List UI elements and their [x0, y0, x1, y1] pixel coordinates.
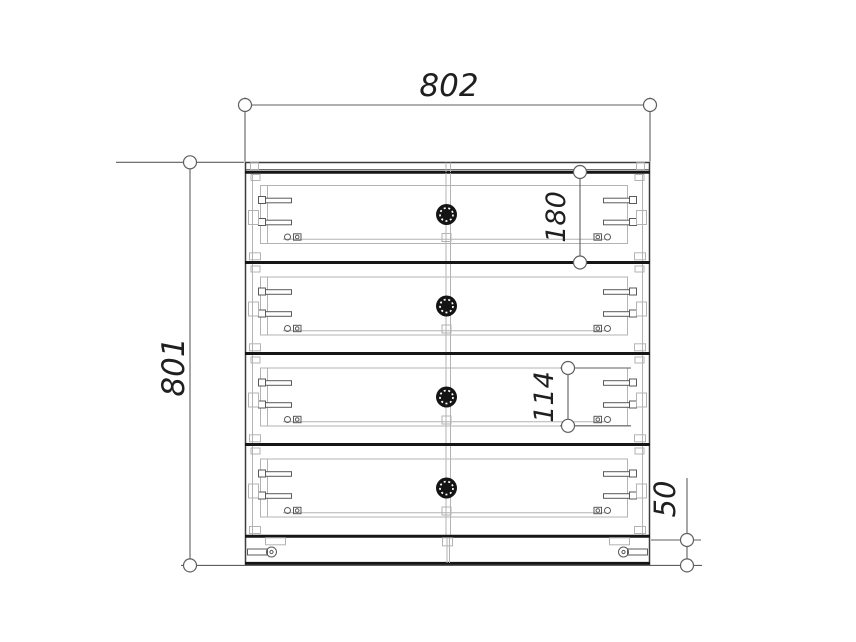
plinth-fitting-icon	[610, 538, 630, 545]
drawer-row-2	[249, 266, 647, 335]
cam-lock-icon	[635, 344, 646, 351]
dimension-label-front-height: 180	[541, 191, 572, 243]
drawer-row-1	[249, 175, 647, 244]
dimension-terminator-icon	[562, 362, 575, 375]
dimension-label-width: 802	[419, 68, 478, 104]
cam-lock-icon	[250, 435, 261, 442]
dimension-overall-width: 802	[239, 68, 657, 162]
plinth	[248, 538, 648, 563]
cam-lock-icon	[251, 163, 259, 170]
cam-lock-icon	[637, 163, 645, 170]
plinth-dowel-right	[628, 549, 648, 555]
cam-lock-icon	[250, 344, 261, 351]
dimension-overall-height: 801	[116, 156, 702, 572]
plinth-dowel-pin-icon	[622, 550, 625, 553]
dimension-terminator-icon	[644, 99, 657, 112]
drawer-stack	[249, 175, 647, 518]
dimension-terminator-icon	[681, 534, 694, 547]
dimension-terminator-icon	[681, 559, 694, 572]
cam-lock-icon	[250, 527, 261, 534]
cam-lock-icon	[635, 253, 646, 260]
cam-lock-icon	[250, 253, 261, 260]
cam-lock-icon	[635, 435, 646, 442]
dimension-label-height: 801	[156, 337, 192, 396]
dimension-label-box-height: 114	[529, 371, 560, 423]
technical-drawing: 802 801 180 114 50	[0, 0, 856, 642]
dimension-terminator-icon	[574, 256, 587, 269]
dimension-terminator-icon	[184, 559, 197, 572]
drawer-row-4	[249, 448, 647, 517]
dimension-drawer-front-height: 180	[541, 166, 587, 270]
plinth-dowel-left	[248, 549, 268, 555]
dimension-terminator-icon	[184, 156, 197, 169]
dimension-plinth-height: 50	[648, 478, 701, 572]
drawing-canvas: 802 801 180 114 50	[0, 0, 856, 642]
cam-lock-icon	[635, 527, 646, 534]
plinth-fitting-icon	[266, 538, 286, 545]
drawer-row-3	[249, 357, 647, 426]
plinth-dowel-pin-icon	[270, 550, 273, 553]
dimension-label-plinth-height: 50	[648, 481, 682, 518]
dimension-terminator-icon	[239, 99, 252, 112]
dimension-terminator-icon	[562, 419, 575, 432]
dimension-terminator-icon	[574, 166, 587, 179]
